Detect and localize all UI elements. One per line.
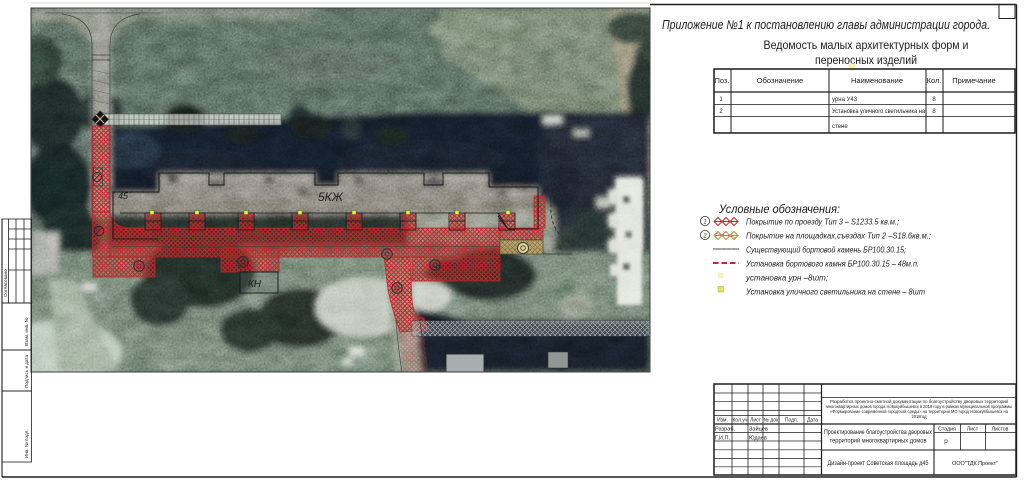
svg-text:Примечание: Примечание: [952, 76, 995, 85]
svg-text:Согласовано: Согласовано: [3, 269, 8, 297]
svg-text:Зайцев: Зайцев: [749, 426, 768, 433]
svg-text:Существующий бортовой камень Б: Существующий бортовой камень БР100.30.15…: [746, 246, 906, 255]
svg-text:Взам. инв. №: Взам. инв. №: [24, 317, 29, 346]
svg-text:2: 2: [719, 109, 723, 115]
svg-text:установка урн –8шт;: установка урн –8шт;: [745, 274, 828, 283]
svg-text:КН: КН: [248, 279, 262, 290]
svg-text:Дата: Дата: [807, 418, 818, 424]
svg-text:территорий многоквартирных дом: территорий многоквартирных домов: [830, 438, 928, 445]
svg-text:Изм.: Изм.: [717, 418, 728, 424]
svg-text:Лист: Лист: [750, 418, 762, 424]
svg-text:Лист: Лист: [967, 427, 979, 433]
svg-text:стене: стене: [832, 124, 848, 130]
svg-text:переносных изделий: переносных изделий: [815, 53, 917, 67]
svg-text:ООО"ТДК Проект": ООО"ТДК Проект": [952, 461, 998, 467]
svg-text:Стадия: Стадия: [938, 427, 956, 433]
svg-text:Юдаев: Юдаев: [749, 435, 767, 441]
svg-text:5КЖ: 5КЖ: [318, 190, 344, 204]
svg-text:1: 1: [703, 220, 706, 226]
svg-text:№ док: № док: [764, 418, 779, 424]
svg-text:1: 1: [719, 97, 723, 103]
svg-text:Кол.: Кол.: [927, 76, 942, 85]
svg-text:Подпись и дата: Подпись и дата: [24, 355, 29, 388]
svg-text:Разраб.: Разраб.: [715, 427, 736, 433]
svg-text:Дизайн-проект Советская площа: Дизайн-проект Советская площадь д45: [828, 460, 929, 467]
svg-text:Установка уличного светильника: Установка уличного светильника на стене …: [745, 288, 925, 297]
svg-text:Листов: Листов: [992, 427, 1009, 433]
svg-text:Установка бортового камня БР10: Установка бортового камня БР100.30.15 – …: [745, 260, 919, 269]
svg-text:Ведомость малых архитектурных: Ведомость малых архитектурных форм и: [764, 38, 969, 52]
svg-text:Приложение №1 к постановлению: Приложение №1 к постановлению главы адми…: [662, 18, 990, 32]
svg-text:Кол.уч: Кол.уч: [733, 418, 748, 424]
svg-text:Покрытие по проезду Тип 3 – S1: Покрытие по проезду Тип 3 – S1233.5 кв.м…: [746, 218, 899, 227]
svg-text:Обозначение: Обозначение: [757, 76, 803, 85]
svg-text:8: 8: [932, 97, 936, 103]
svg-text:2: 2: [702, 234, 707, 240]
svg-text:Г.И.П.: Г.И.П.: [715, 435, 730, 441]
svg-text:2018год: 2018год: [911, 414, 927, 419]
svg-text:Покрытие на площадках,съездах: Покрытие на площадках,съездах Тип 2 –S18…: [746, 232, 931, 241]
svg-text:8: 8: [932, 109, 936, 115]
svg-text:урна У43: урна У43: [832, 97, 858, 103]
svg-text:Подп.: Подп.: [785, 418, 798, 424]
svg-text:Инв. № подл.: Инв. № подл.: [24, 429, 29, 458]
svg-text:Проектирование благоустройства: Проектирование благоустройства дворовых: [824, 429, 933, 436]
svg-text:Условные обозначения:: Условные обозначения:: [718, 202, 840, 216]
svg-text:Наименование: Наименование: [851, 76, 903, 85]
svg-text:р: р: [944, 438, 948, 445]
svg-text:Установка уличного светильника: Установка уличного светильника на: [832, 109, 926, 115]
svg-text:Поз.: Поз.: [715, 76, 730, 85]
svg-text:45: 45: [118, 191, 129, 201]
